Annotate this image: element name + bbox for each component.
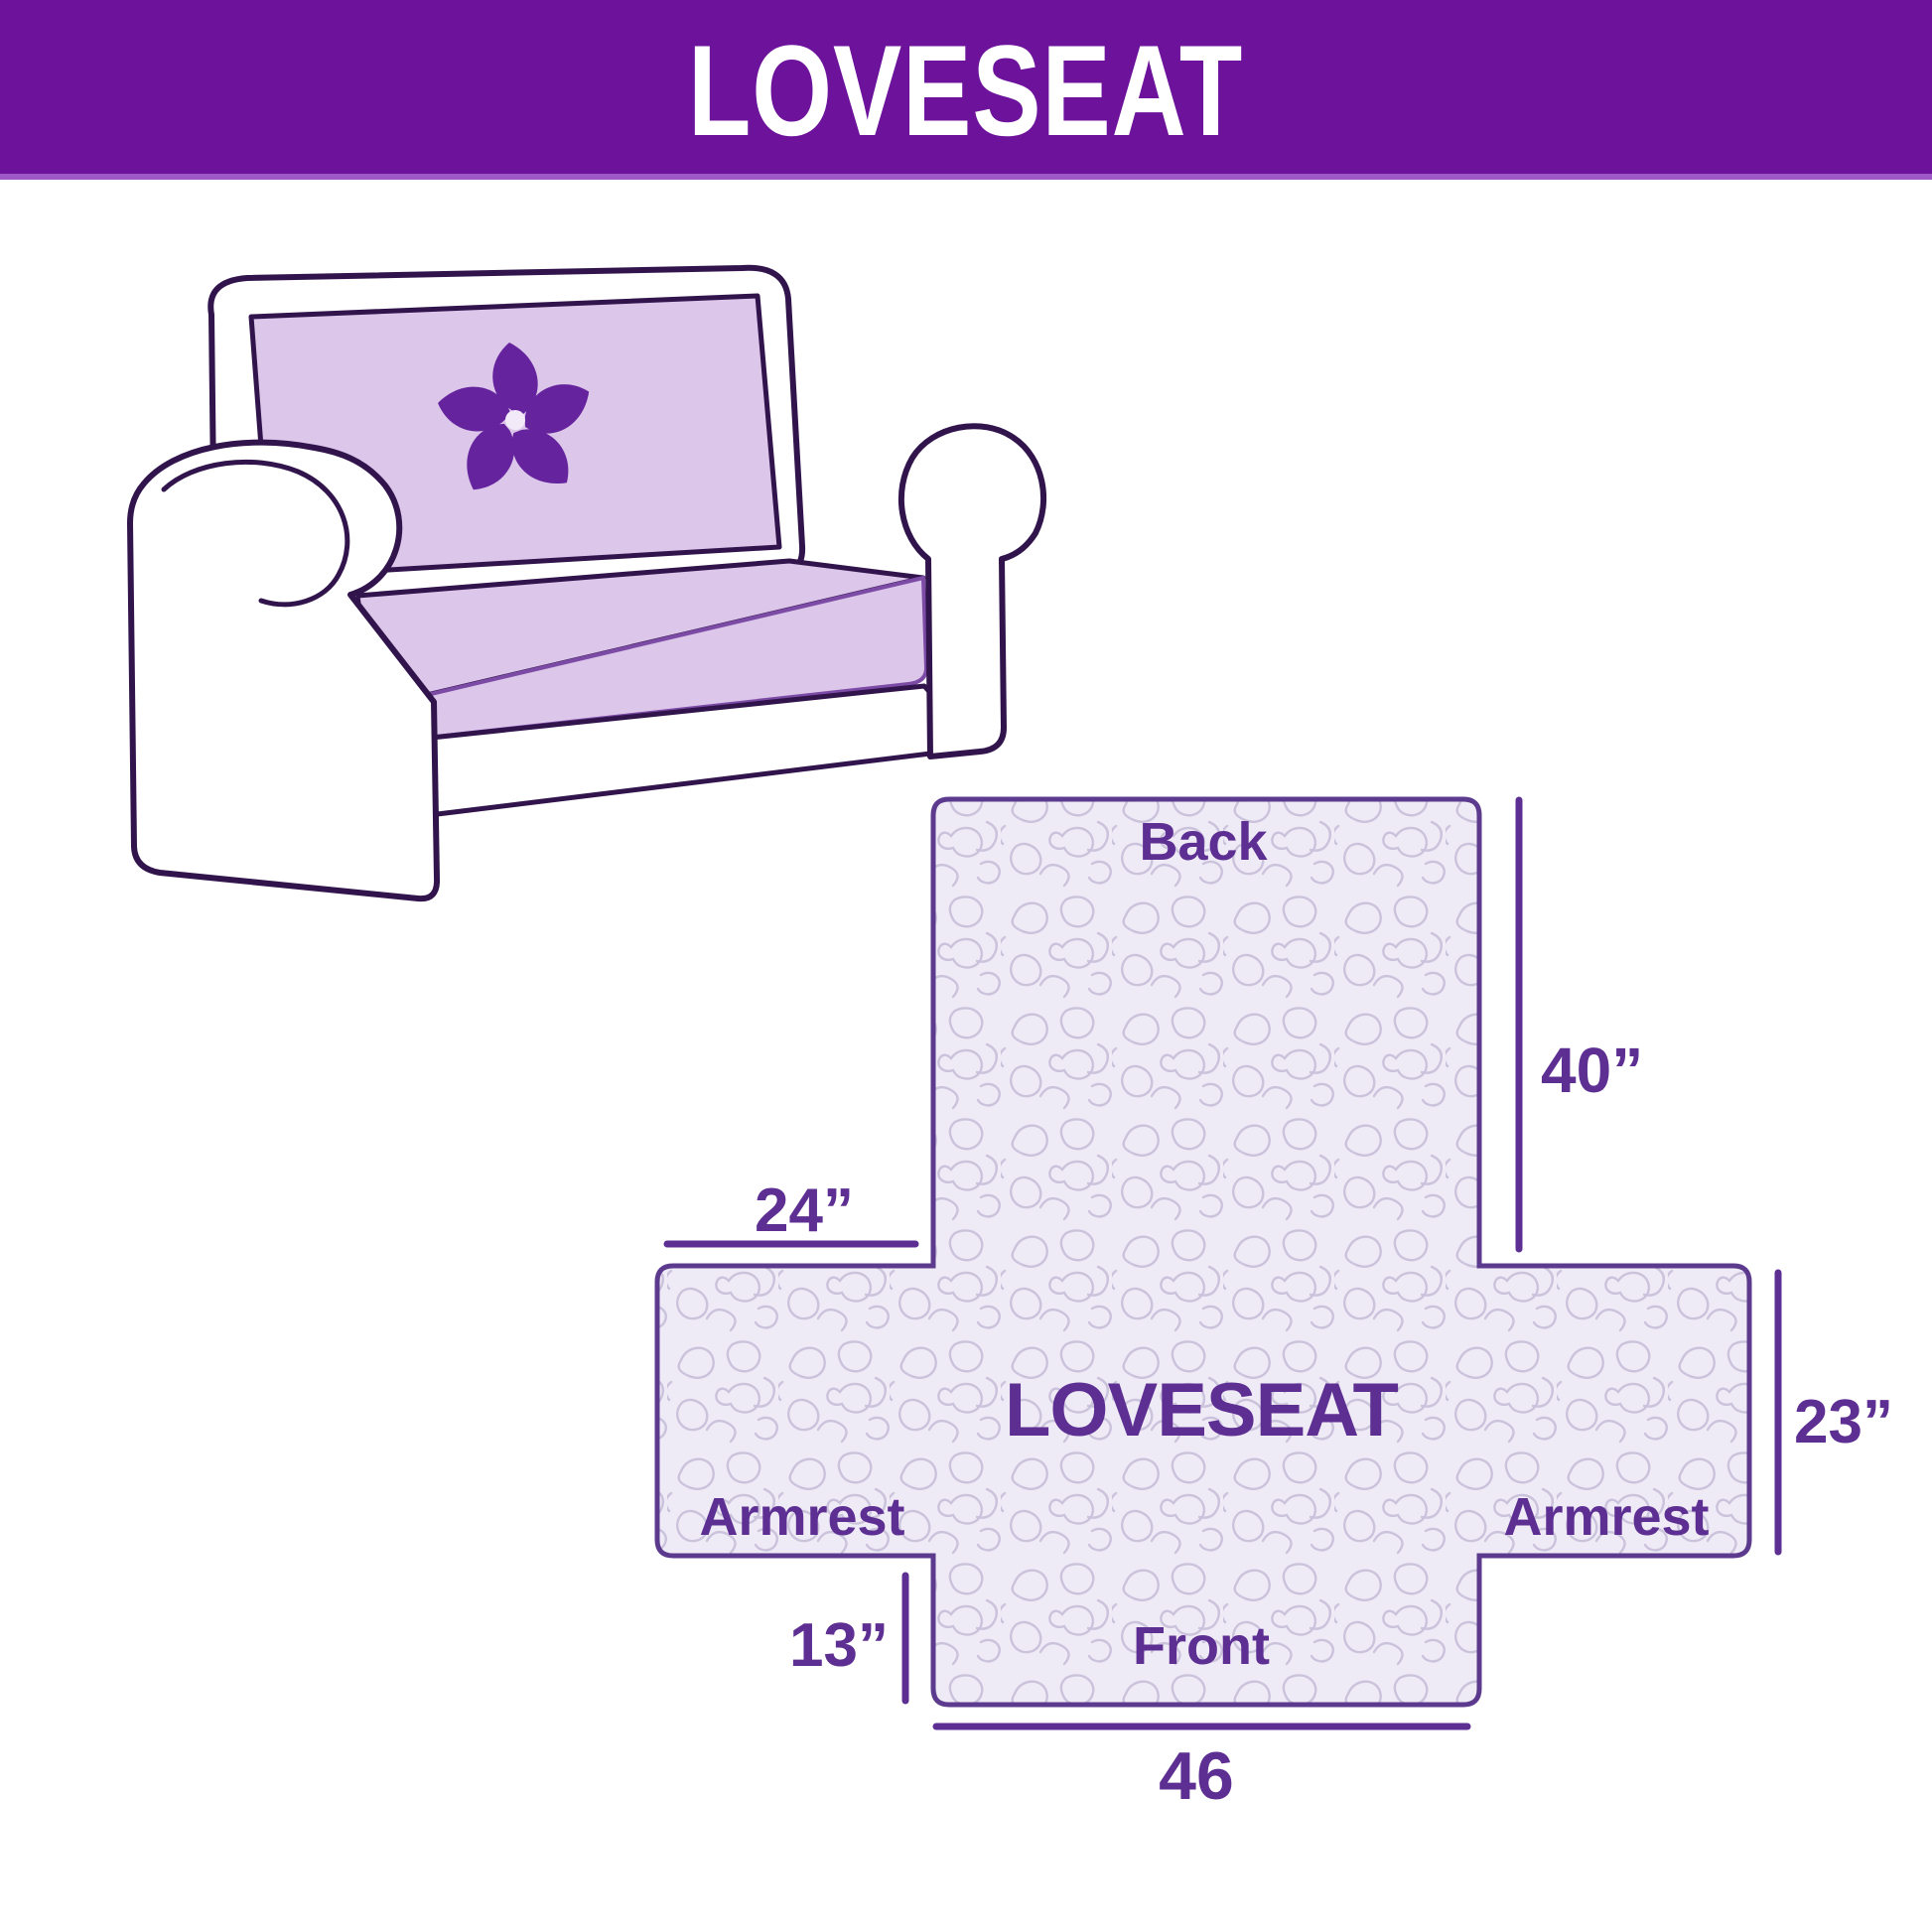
label-armrest-right: Armrest [1503,1487,1709,1547]
label-armrest-left: Armrest [699,1487,904,1547]
diagram-canvas: Back LOVESEAT Armrest Armrest Front 40” … [0,0,1932,1932]
sofa-left-arm [130,443,437,899]
dim-value-armrest-side-height: 23” [1794,1388,1893,1456]
dim-value-back-height: 40” [1541,1035,1643,1106]
cover-shape-quilted [657,799,1749,1705]
label-center-loveseat: LOVESEAT [1005,1368,1399,1452]
loveseat-illustration [130,268,1043,898]
page: LOVESEAT [0,0,1932,1932]
label-front: Front [1133,1616,1270,1676]
dim-value-armrest-top-width: 24” [755,1176,854,1245]
dim-value-front-skirt-height: 13” [789,1611,889,1680]
label-back: Back [1139,812,1268,872]
dim-value-front-width: 46 [1159,1738,1234,1814]
